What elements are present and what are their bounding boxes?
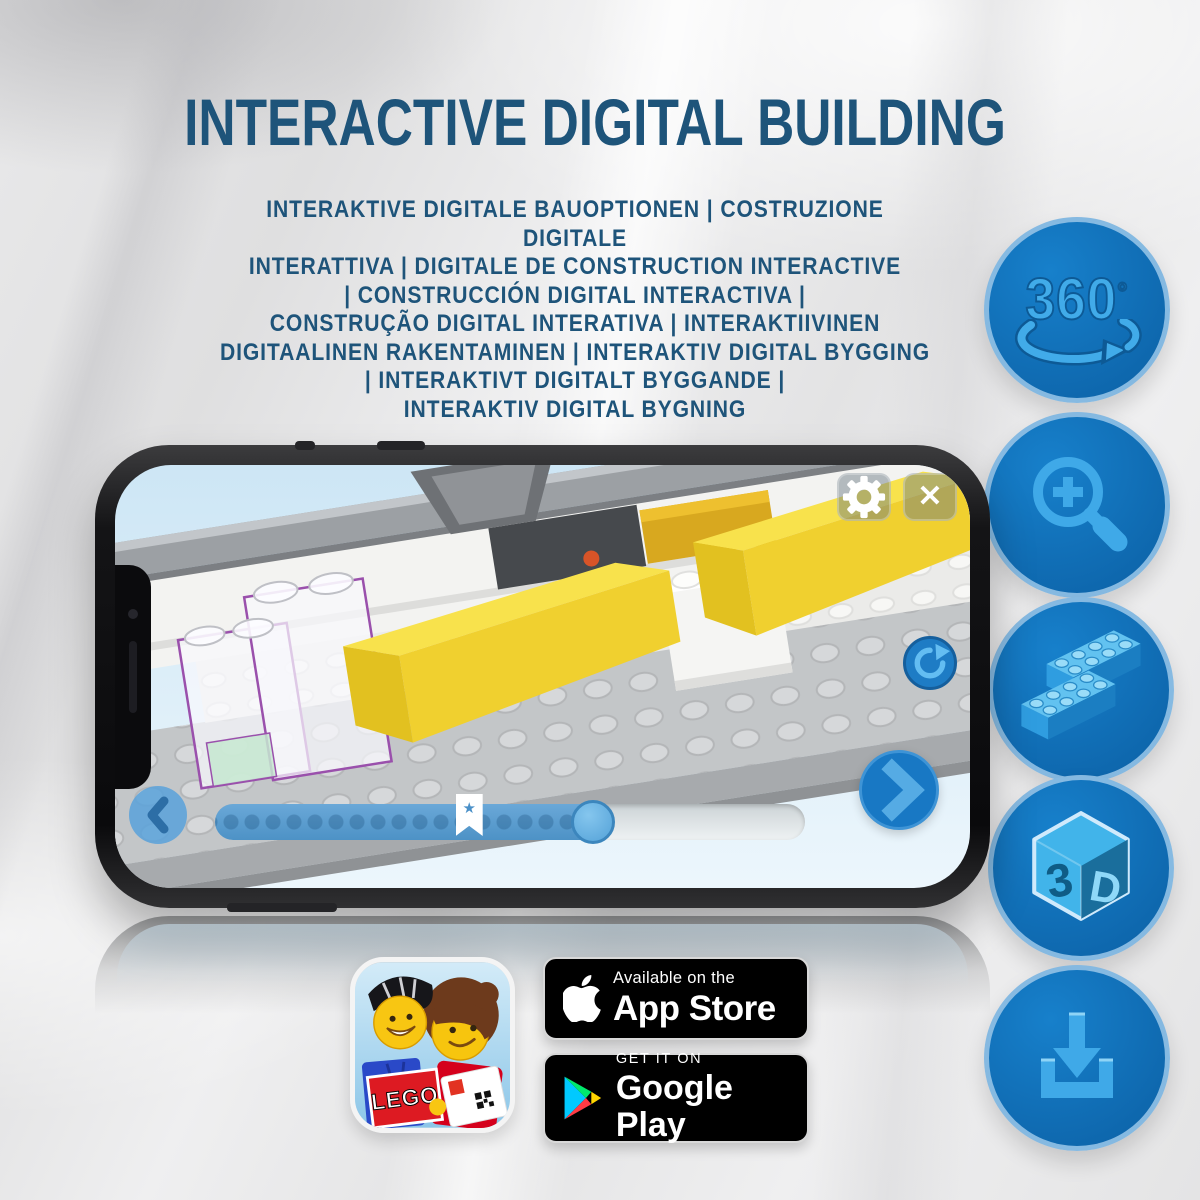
lego-logo: LEGO xyxy=(367,1069,442,1128)
subtitle-line: DIGITAALINEN RAKENTAMINEN | INTERAKTIV D… xyxy=(214,339,936,368)
rotate-icon xyxy=(910,643,950,683)
next-step-button[interactable] xyxy=(859,750,939,830)
360-rotation-icon: 360° xyxy=(1026,266,1129,333)
google-play-name: Google Play xyxy=(616,1070,807,1143)
phone-volume-button xyxy=(377,441,425,450)
subtitle-line: | CONSTRUCCIÓN DIGITAL INTERACTIVA | xyxy=(214,282,936,311)
phone-notch xyxy=(115,565,151,789)
notch-speaker xyxy=(129,641,137,713)
settings-button[interactable] xyxy=(837,473,891,521)
feature-badge-3d: 3 D xyxy=(988,775,1174,961)
star-icon: ★ xyxy=(462,800,475,817)
page-background: { "header": { "title": "INTERACTIVE DIGI… xyxy=(0,0,1200,1200)
close-button[interactable]: ✕ xyxy=(903,473,957,521)
play-triangle-icon xyxy=(561,1073,604,1123)
subtitle-line: | INTERAKTIVT DIGITALT BYGGANDE | xyxy=(214,367,936,396)
progress-fill xyxy=(215,804,593,840)
subtitle-line: INTERAKTIVE DIGITALE BAUOPTIONEN | COSTR… xyxy=(214,196,936,253)
chevron-left-icon xyxy=(135,788,181,842)
app-store-tagline: Available on the xyxy=(613,970,776,988)
previous-step-button[interactable] xyxy=(129,786,187,844)
feature-badge-bricks xyxy=(988,597,1174,783)
subtitle-line: CONSTRUÇÃO DIGITAL INTERATIVA | INTERAKT… xyxy=(214,310,936,339)
build-progress-bar[interactable]: ★ xyxy=(215,804,805,840)
phone-power-button xyxy=(227,903,337,912)
close-icon: ✕ xyxy=(917,482,942,512)
3d-cube-icon: 3 D xyxy=(1020,807,1142,929)
bricks-icon xyxy=(1018,627,1144,753)
progress-knob[interactable] xyxy=(571,800,615,844)
feature-badge-download xyxy=(984,965,1170,1151)
lego-app-icon[interactable]: LEGO xyxy=(350,957,515,1133)
google-play-tagline: GET IT ON xyxy=(616,1052,807,1068)
phone-side-button xyxy=(295,441,315,450)
app-store-name: App Store xyxy=(613,990,776,1028)
subtitle-block: INTERAKTIVE DIGITALE BAUOPTIONEN | COSTR… xyxy=(214,196,936,424)
page-title: INTERACTIVE DIGITAL BUILDING xyxy=(131,84,1059,160)
feature-badge-zoom xyxy=(984,412,1170,598)
rotate-view-button[interactable] xyxy=(903,636,957,690)
lego-app-artwork: LEGO xyxy=(355,962,510,1128)
phone-screen: ✕ ★ xyxy=(115,465,970,888)
feature-badge-360: 360° xyxy=(984,217,1170,403)
app-store-badge[interactable]: Available on the App Store xyxy=(543,957,809,1040)
google-play-badge[interactable]: GET IT ON Google Play xyxy=(543,1053,809,1143)
subtitle-line: INTERATTIVA | DIGITALE DE CONSTRUCTION I… xyxy=(214,253,936,282)
phone-mockup: ✕ ★ xyxy=(95,445,990,908)
download-icon xyxy=(1017,1002,1137,1114)
notch-camera xyxy=(128,609,138,619)
zoom-in-icon xyxy=(1018,446,1136,564)
subtitle-line: INTERAKTIV DIGITAL BYGNING xyxy=(214,396,936,425)
apple-icon xyxy=(563,975,601,1022)
gear-icon xyxy=(842,475,886,519)
chevron-right-icon xyxy=(868,755,930,825)
